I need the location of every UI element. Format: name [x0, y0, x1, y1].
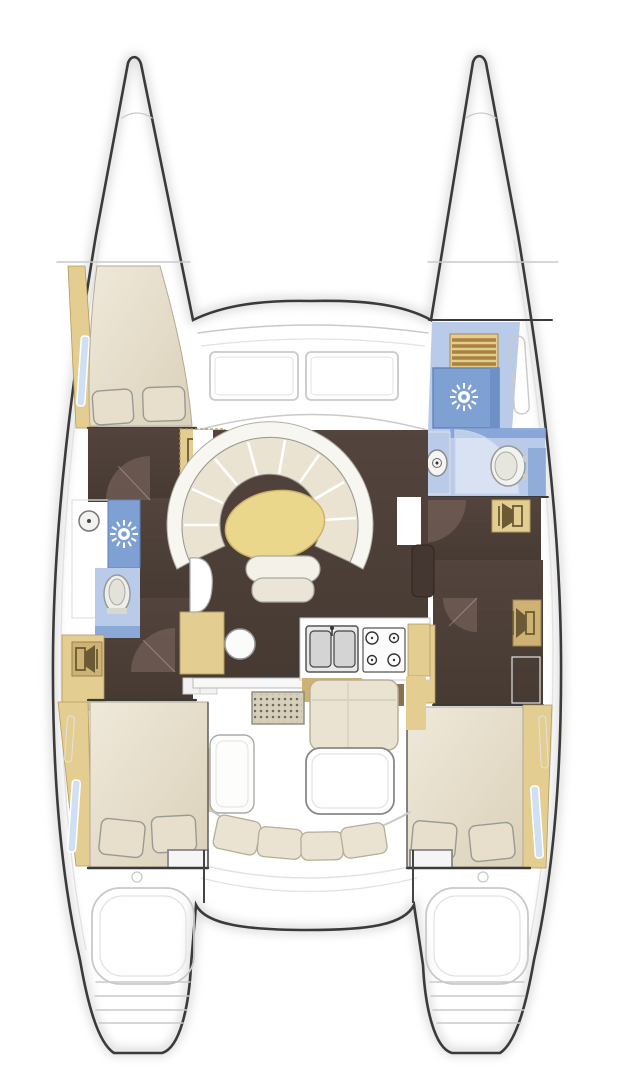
- port-locker: [62, 635, 104, 710]
- aft-window: [168, 850, 208, 868]
- aft-seat: [412, 545, 434, 597]
- pillow: [92, 389, 134, 426]
- galley-cabinet: [406, 676, 426, 730]
- cockpit-curved-bench: [210, 810, 410, 860]
- coachroof-window-right: [306, 352, 398, 400]
- port-head: [72, 500, 140, 638]
- windshield-line-2: [201, 339, 425, 346]
- starboard-stern-platform: [426, 872, 528, 1023]
- pillow: [98, 818, 146, 858]
- cockpit: [204, 680, 413, 903]
- port-aft-cabin: [58, 700, 218, 868]
- sliding-door: [193, 678, 307, 688]
- bench-cushion: [301, 832, 343, 861]
- catamaran-floorplan: [0, 0, 619, 1080]
- nav-desk: [180, 612, 224, 674]
- coachroof-window-left: [210, 352, 298, 400]
- bench-cushion: [212, 814, 262, 856]
- deck-grating-icon: [252, 692, 304, 724]
- bench-cushion: [340, 822, 388, 860]
- pillow: [151, 815, 197, 853]
- double-sink-icon: [306, 626, 358, 672]
- bench-cushion: [257, 826, 303, 860]
- stove-icon: [363, 628, 405, 672]
- coachroof: [198, 325, 428, 430]
- salon-seat: [246, 556, 320, 602]
- locker-speaker-icon: [492, 500, 530, 532]
- starboard-aft-cabin: [407, 705, 552, 868]
- port-forward-cabin: [68, 266, 196, 428]
- locker-speaker-icon: [72, 642, 102, 676]
- galley-cabinet: [408, 624, 430, 676]
- locker-speaker-icon: [513, 600, 541, 646]
- port-stern-platform: [92, 872, 194, 1023]
- cleat: [132, 872, 142, 882]
- cockpit-table: [306, 748, 394, 814]
- aft-window: [410, 850, 452, 868]
- pillow: [142, 386, 185, 421]
- cockpit-coaming-line: [198, 415, 427, 431]
- floorplan-canvas: [0, 0, 619, 1080]
- cleat: [478, 872, 488, 882]
- cockpit-bench-l: [310, 680, 398, 750]
- pillow: [468, 822, 516, 862]
- starboard-corridor: [420, 497, 543, 705]
- nav-stool: [225, 629, 255, 659]
- windshield-line: [198, 325, 428, 333]
